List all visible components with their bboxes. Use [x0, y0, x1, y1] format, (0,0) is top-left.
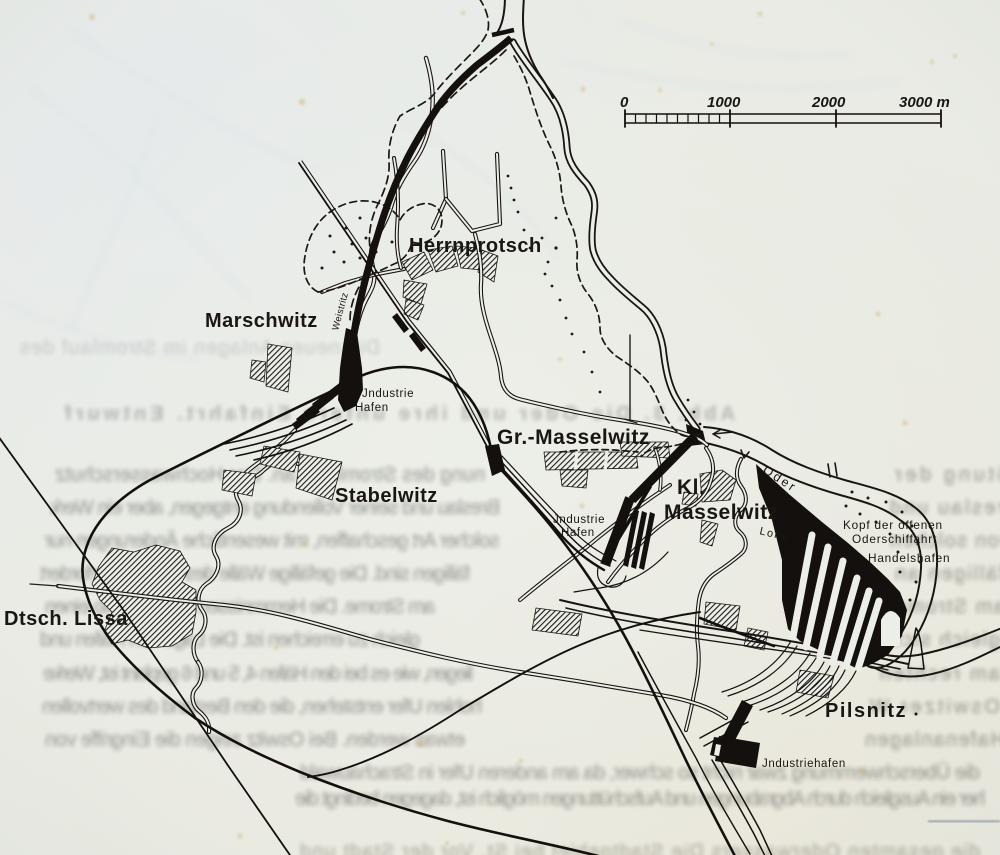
svg-text:3000 m: 3000 m	[899, 94, 950, 111]
svg-text:Hafen: Hafen	[355, 402, 389, 414]
svg-text:fälligen an: fälligen an	[895, 563, 1000, 585]
svg-text:Jndustrie: Jndustrie	[553, 514, 605, 526]
svg-text:Marschwitz: Marschwitz	[205, 310, 318, 332]
svg-text:Die neuen Anlagen im Stromlauf: Die neuen Anlagen im Stromlauf des	[20, 337, 380, 359]
svg-text:0: 0	[620, 94, 629, 111]
svg-text:Hafen: Hafen	[561, 527, 595, 539]
svg-text:Gr.-Masselwitz: Gr.-Masselwitz	[497, 426, 650, 449]
svg-text:Herrnprotsch: Herrnprotsch	[409, 235, 542, 257]
svg-text:Masselwitz: Masselwitz	[664, 501, 779, 524]
svg-text:Oderschiffahrt: Oderschiffahrt	[852, 532, 937, 546]
svg-text:Jndustrie: Jndustrie	[362, 388, 414, 400]
svg-text:Kopf der offenen: Kopf der offenen	[843, 518, 943, 532]
svg-text:Kl.: Kl.	[677, 476, 705, 499]
svg-text:Handelshafen: Handelshafen	[868, 551, 950, 565]
svg-text:leitung der: leitung der	[895, 464, 1000, 486]
svg-text:1000: 1000	[707, 94, 741, 111]
svg-text:2000: 2000	[811, 94, 846, 111]
svg-text:Stabelwitz: Stabelwitz	[335, 485, 438, 507]
svg-text:die Überschwemmung zwar nicht: die Überschwemmung zwar nicht so schwer,…	[300, 762, 980, 784]
svg-text:etwas werden. Bei Oswitz zeige: etwas werden. Bei Oswitz zeigen die Eing…	[45, 729, 465, 751]
svg-text:Dtsch. Lissa: Dtsch. Lissa	[4, 608, 128, 630]
svg-text:gleich zu erreichen ist. Die L: gleich zu erreichen ist. Die Lage von Hä…	[40, 629, 420, 651]
svg-text:Jndustriehafen: Jndustriehafen	[762, 758, 846, 770]
svg-text:am rechten: am rechten	[880, 663, 1000, 685]
svg-text:Pilsnitz: Pilsnitz	[825, 700, 907, 722]
svg-text:hohlen Ufer entstehen, die den: hohlen Ufer entstehen, die den Bestand d…	[42, 696, 482, 718]
svg-text:liegen, wie es bei den Häfen 4: liegen, wie es bei den Häfen 4, 5 und 6 …	[43, 663, 473, 685]
svg-text:Hafenanlagen: Hafenanlagen	[865, 729, 1000, 751]
